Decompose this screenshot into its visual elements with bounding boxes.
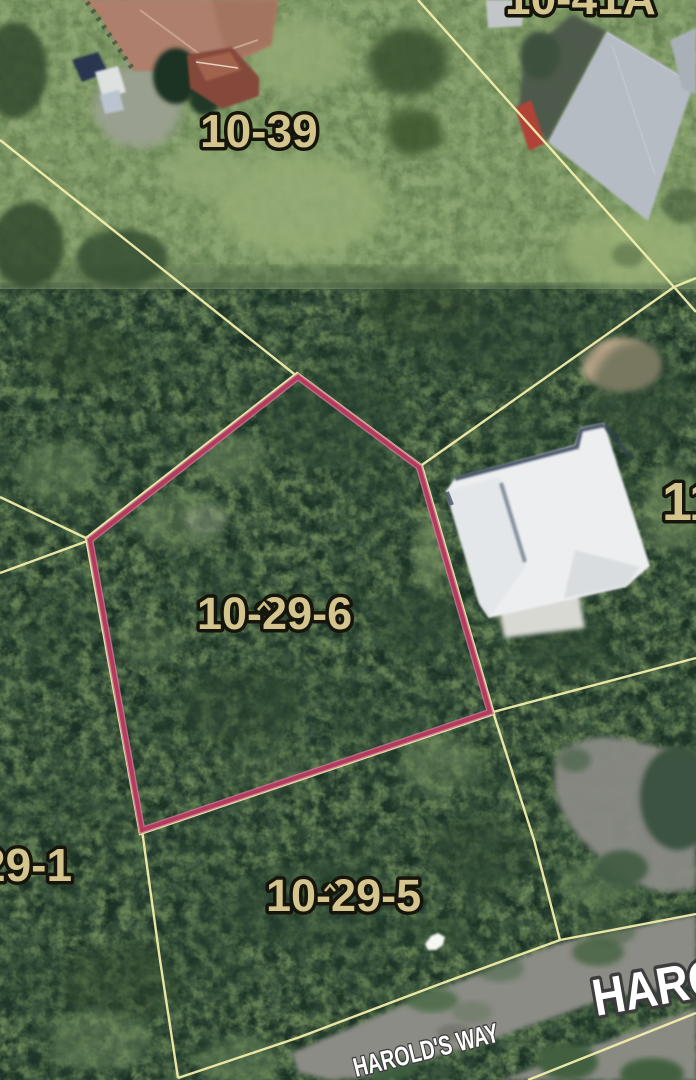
svg-text:10-39: 10-39 [200,105,318,157]
svg-text:10-29-6: 10-29-6 [197,588,352,639]
svg-text:11: 11 [662,472,696,532]
svg-text:10-29-5: 10-29-5 [266,870,421,921]
svg-text:29-1: 29-1 [0,839,72,891]
svg-text:10-41A: 10-41A [505,0,656,24]
